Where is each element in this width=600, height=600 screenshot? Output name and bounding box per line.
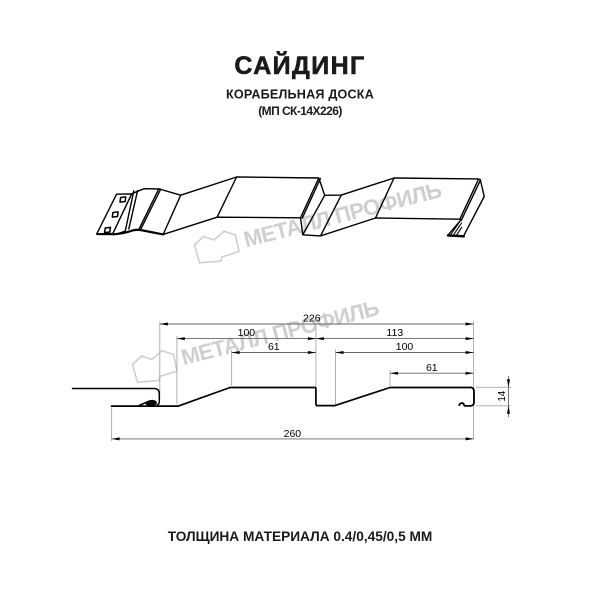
svg-text:100: 100	[396, 341, 414, 353]
svg-text:260: 260	[284, 428, 302, 440]
svg-text:САЙДИНГ: САЙДИНГ	[234, 50, 365, 80]
svg-text:МЕТАЛЛ ПРОФИЛЬ: МЕТАЛЛ ПРОФИЛЬ	[178, 295, 381, 370]
svg-text:61: 61	[268, 341, 280, 353]
svg-text:113: 113	[386, 327, 403, 339]
svg-text:14: 14	[497, 390, 508, 401]
svg-text:КОРАБЕЛЬНАЯ ДОСКА: КОРАБЕЛЬНАЯ ДОСКА	[226, 88, 374, 102]
svg-text:ТОЛЩИНА МАТЕРИАЛА 0.4/0,45/0,5: ТОЛЩИНА МАТЕРИАЛА 0.4/0,45/0,5 ММ	[168, 529, 433, 544]
svg-text:226: 226	[303, 313, 321, 325]
svg-text:МЕТАЛЛ ПРОФИЛЬ: МЕТАЛЛ ПРОФИЛЬ	[241, 177, 444, 252]
svg-text:(МП СК-14Х226): (МП СК-14Х226)	[258, 104, 342, 118]
svg-text:100: 100	[238, 327, 256, 339]
svg-text:61: 61	[426, 362, 438, 374]
